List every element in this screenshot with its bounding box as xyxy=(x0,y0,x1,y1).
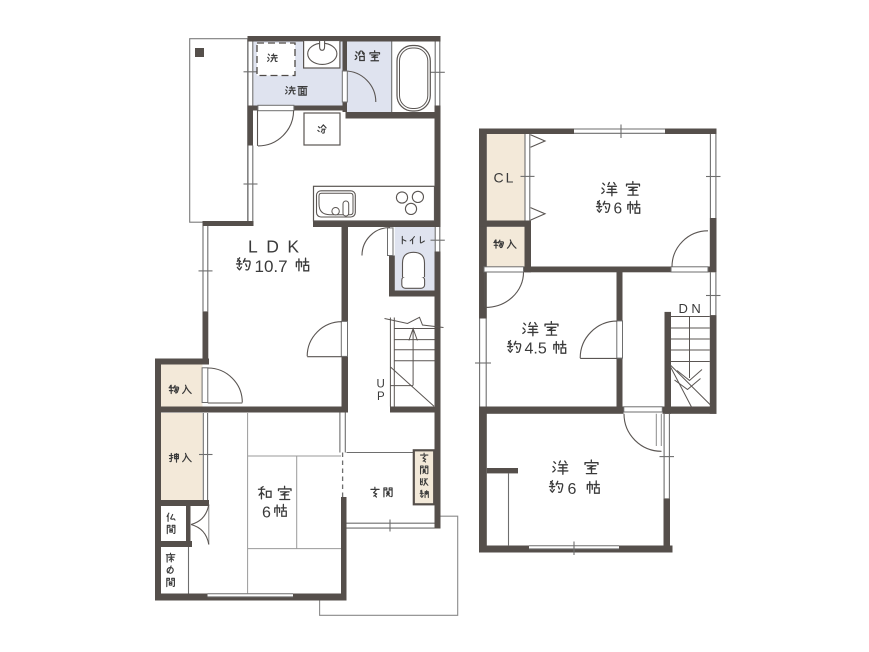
svg-text:DN: DN xyxy=(679,301,705,316)
svg-text:LDK: LDK xyxy=(248,236,308,256)
svg-text:6: 6 xyxy=(262,504,271,521)
svg-text:10.7: 10.7 xyxy=(255,257,288,276)
svg-text:CL: CL xyxy=(494,170,516,186)
svg-text:6: 6 xyxy=(568,481,577,498)
svg-text:4.5: 4.5 xyxy=(525,340,547,357)
svg-text:6: 6 xyxy=(614,200,623,217)
svg-text:P: P xyxy=(377,391,385,403)
svg-text:U: U xyxy=(377,379,385,391)
